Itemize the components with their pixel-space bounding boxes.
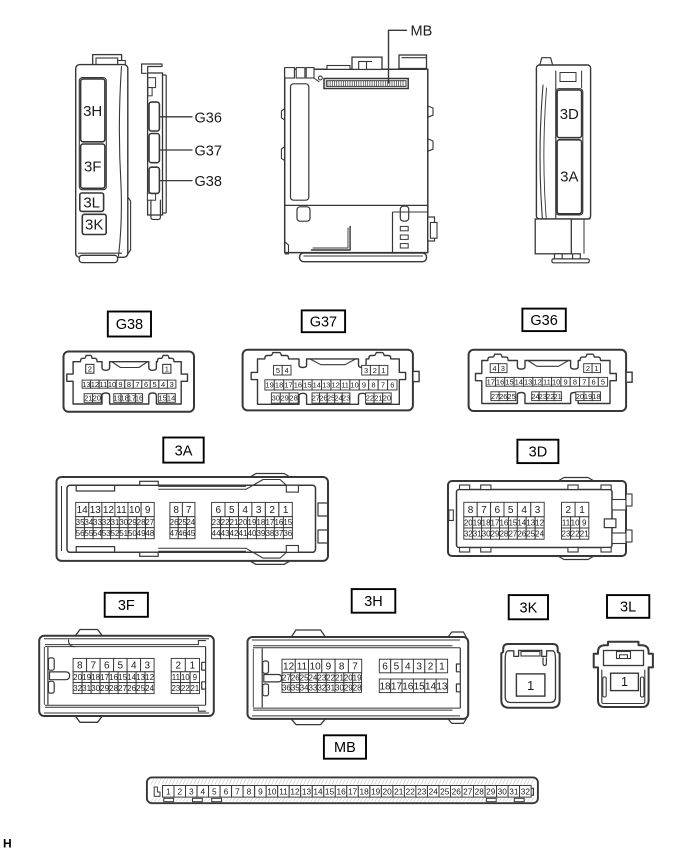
svg-text:6: 6 <box>382 662 388 673</box>
svg-text:13: 13 <box>82 380 90 389</box>
svg-text:9: 9 <box>582 518 587 527</box>
svg-text:G38: G38 <box>195 174 222 190</box>
svg-text:14: 14 <box>313 381 321 390</box>
svg-text:13: 13 <box>436 681 448 692</box>
svg-text:3: 3 <box>535 505 541 516</box>
svg-text:19: 19 <box>353 674 362 683</box>
svg-text:1: 1 <box>190 661 196 672</box>
svg-text:15: 15 <box>158 394 166 403</box>
svg-text:17: 17 <box>284 381 292 390</box>
svg-text:17: 17 <box>391 681 403 692</box>
svg-text:8: 8 <box>173 505 179 516</box>
svg-text:12: 12 <box>533 378 541 387</box>
svg-text:12: 12 <box>332 381 340 390</box>
svg-text:23: 23 <box>417 786 427 796</box>
svg-text:8: 8 <box>468 505 474 516</box>
svg-text:13: 13 <box>90 505 102 516</box>
svg-text:G38: G38 <box>116 317 143 333</box>
svg-text:3D: 3D <box>560 106 579 123</box>
svg-text:15: 15 <box>505 378 513 387</box>
svg-text:3: 3 <box>501 364 505 373</box>
svg-text:21: 21 <box>580 530 589 539</box>
svg-text:10: 10 <box>310 662 322 673</box>
svg-text:9: 9 <box>258 786 263 796</box>
svg-text:29: 29 <box>281 394 289 403</box>
svg-text:4: 4 <box>200 786 205 796</box>
svg-text:26: 26 <box>452 786 462 796</box>
svg-text:2: 2 <box>373 366 377 375</box>
svg-text:10: 10 <box>571 518 580 527</box>
svg-text:1: 1 <box>621 674 628 689</box>
svg-text:3A: 3A <box>175 443 193 459</box>
svg-text:4: 4 <box>285 366 289 375</box>
svg-text:24: 24 <box>535 530 544 539</box>
svg-text:17: 17 <box>348 786 358 796</box>
svg-text:14: 14 <box>77 505 89 516</box>
svg-text:3A: 3A <box>560 169 578 186</box>
svg-text:H: H <box>3 837 12 851</box>
svg-text:16: 16 <box>402 681 414 692</box>
svg-text:7: 7 <box>91 661 97 672</box>
svg-text:48: 48 <box>145 529 154 538</box>
svg-text:30: 30 <box>498 786 508 796</box>
svg-text:15: 15 <box>414 681 426 692</box>
svg-text:3K: 3K <box>520 600 538 616</box>
svg-text:24: 24 <box>145 684 154 693</box>
svg-text:2: 2 <box>586 364 590 373</box>
svg-text:8: 8 <box>339 662 345 673</box>
svg-text:5: 5 <box>601 378 605 387</box>
svg-text:6: 6 <box>216 505 222 516</box>
svg-text:3: 3 <box>256 505 262 516</box>
svg-text:18: 18 <box>379 681 391 692</box>
svg-text:4: 4 <box>161 380 165 389</box>
svg-text:9: 9 <box>362 381 366 390</box>
svg-text:32: 32 <box>521 786 531 796</box>
svg-text:20: 20 <box>576 392 584 401</box>
svg-text:18: 18 <box>359 786 369 796</box>
svg-text:22: 22 <box>571 530 580 539</box>
svg-text:8: 8 <box>127 380 131 389</box>
svg-text:9: 9 <box>145 505 151 516</box>
svg-text:10: 10 <box>108 380 116 389</box>
svg-text:2: 2 <box>177 786 182 796</box>
svg-text:13: 13 <box>322 381 330 390</box>
svg-text:4: 4 <box>492 364 496 373</box>
svg-text:11: 11 <box>562 518 571 527</box>
svg-text:19: 19 <box>371 786 381 796</box>
svg-text:5: 5 <box>118 661 124 672</box>
svg-text:18: 18 <box>275 381 283 390</box>
svg-text:5: 5 <box>229 505 235 516</box>
svg-text:3: 3 <box>145 661 151 672</box>
svg-text:7: 7 <box>582 378 586 387</box>
svg-text:8: 8 <box>247 786 252 796</box>
svg-text:11: 11 <box>279 786 288 796</box>
svg-text:3F: 3F <box>84 158 102 175</box>
svg-text:11: 11 <box>116 505 127 516</box>
svg-text:5: 5 <box>394 662 400 673</box>
svg-text:27: 27 <box>463 786 473 796</box>
svg-text:15: 15 <box>325 786 335 796</box>
svg-text:27: 27 <box>145 518 154 527</box>
svg-text:24: 24 <box>429 786 439 796</box>
svg-text:12: 12 <box>145 673 154 682</box>
svg-text:12: 12 <box>290 786 300 796</box>
svg-text:14: 14 <box>167 394 175 403</box>
svg-text:21: 21 <box>374 394 382 403</box>
svg-text:G37: G37 <box>310 315 337 331</box>
svg-text:7: 7 <box>481 505 487 516</box>
svg-text:31: 31 <box>509 786 519 796</box>
svg-text:7: 7 <box>186 505 192 516</box>
svg-text:19: 19 <box>265 381 273 390</box>
svg-text:7: 7 <box>135 380 139 389</box>
svg-text:7: 7 <box>352 662 358 673</box>
svg-text:7: 7 <box>381 381 385 390</box>
svg-text:25: 25 <box>440 786 450 796</box>
svg-text:25: 25 <box>507 392 515 401</box>
svg-text:1: 1 <box>165 365 169 374</box>
svg-text:1: 1 <box>579 505 585 516</box>
svg-text:11: 11 <box>172 673 181 682</box>
svg-text:28: 28 <box>289 394 297 403</box>
svg-text:20: 20 <box>93 394 101 403</box>
svg-text:3: 3 <box>364 366 368 375</box>
svg-text:13: 13 <box>524 378 532 387</box>
svg-text:30: 30 <box>272 394 280 403</box>
svg-text:1: 1 <box>283 505 289 516</box>
svg-text:10: 10 <box>181 673 190 682</box>
svg-text:5: 5 <box>276 366 280 375</box>
svg-text:8: 8 <box>371 381 375 390</box>
svg-text:3D: 3D <box>529 445 548 461</box>
svg-text:11: 11 <box>341 381 349 390</box>
svg-text:6: 6 <box>390 381 394 390</box>
svg-text:16: 16 <box>294 381 302 390</box>
svg-text:6: 6 <box>592 378 596 387</box>
svg-text:20: 20 <box>382 786 392 796</box>
svg-text:2: 2 <box>566 505 572 516</box>
svg-text:3L: 3L <box>83 195 100 212</box>
svg-text:23: 23 <box>342 394 350 403</box>
svg-text:3H: 3H <box>364 594 383 610</box>
svg-text:4: 4 <box>131 661 137 672</box>
svg-text:6: 6 <box>104 661 110 672</box>
svg-text:21: 21 <box>84 394 92 403</box>
svg-text:5: 5 <box>153 380 157 389</box>
svg-text:17: 17 <box>487 378 495 387</box>
svg-text:28: 28 <box>475 786 485 796</box>
svg-text:18: 18 <box>592 392 600 401</box>
svg-text:9: 9 <box>193 673 198 682</box>
svg-text:1: 1 <box>381 366 385 375</box>
svg-text:4: 4 <box>242 505 248 516</box>
svg-text:10: 10 <box>350 381 358 390</box>
svg-text:1: 1 <box>527 678 534 693</box>
svg-text:14: 14 <box>425 681 437 692</box>
svg-text:1: 1 <box>166 786 171 796</box>
svg-text:45: 45 <box>186 529 195 538</box>
svg-text:11: 11 <box>100 380 108 389</box>
svg-text:3: 3 <box>170 380 174 389</box>
svg-text:8: 8 <box>77 661 83 672</box>
svg-text:12: 12 <box>535 518 544 527</box>
svg-text:G36: G36 <box>195 110 222 126</box>
svg-text:15: 15 <box>283 518 292 527</box>
svg-text:9: 9 <box>564 378 568 387</box>
svg-text:6: 6 <box>495 505 501 516</box>
svg-text:1: 1 <box>594 364 598 373</box>
svg-text:2: 2 <box>176 661 182 672</box>
svg-text:G37: G37 <box>195 144 222 160</box>
svg-text:28: 28 <box>353 683 362 692</box>
svg-text:7: 7 <box>235 786 240 796</box>
svg-text:13: 13 <box>302 786 312 796</box>
svg-text:5: 5 <box>212 786 217 796</box>
svg-text:16: 16 <box>336 786 346 796</box>
svg-text:26: 26 <box>499 392 507 401</box>
svg-text:2: 2 <box>88 365 92 374</box>
svg-text:22: 22 <box>406 786 416 796</box>
svg-text:15: 15 <box>303 381 311 390</box>
svg-text:9: 9 <box>326 662 332 673</box>
svg-text:3F: 3F <box>118 598 135 614</box>
svg-text:9: 9 <box>118 380 122 389</box>
svg-text:24: 24 <box>186 518 195 527</box>
svg-text:3: 3 <box>189 786 194 796</box>
svg-text:36: 36 <box>283 529 292 538</box>
svg-text:3H: 3H <box>83 103 102 120</box>
svg-text:4: 4 <box>521 505 527 516</box>
svg-text:12: 12 <box>91 380 99 389</box>
svg-text:22: 22 <box>366 394 374 403</box>
svg-text:21: 21 <box>554 392 562 401</box>
svg-text:8: 8 <box>573 378 577 387</box>
svg-text:2: 2 <box>428 662 434 673</box>
svg-text:16: 16 <box>496 378 504 387</box>
svg-text:21: 21 <box>190 684 199 693</box>
svg-text:10: 10 <box>129 505 141 516</box>
svg-text:11: 11 <box>297 662 308 673</box>
svg-text:5: 5 <box>508 505 514 516</box>
svg-text:6: 6 <box>144 380 148 389</box>
svg-text:2: 2 <box>269 505 275 516</box>
svg-text:3L: 3L <box>620 600 636 616</box>
svg-text:11: 11 <box>543 378 551 387</box>
svg-text:23: 23 <box>562 530 571 539</box>
svg-text:12: 12 <box>283 662 295 673</box>
svg-text:3: 3 <box>416 662 422 673</box>
svg-text:22: 22 <box>181 684 190 693</box>
svg-text:10: 10 <box>552 378 560 387</box>
svg-text:4: 4 <box>405 662 411 673</box>
svg-text:19: 19 <box>584 392 592 401</box>
svg-text:23: 23 <box>171 684 180 693</box>
svg-text:MB: MB <box>411 23 433 39</box>
svg-text:1: 1 <box>439 662 445 673</box>
svg-text:21: 21 <box>394 786 404 796</box>
svg-text:3K: 3K <box>85 217 103 234</box>
svg-text:12: 12 <box>103 505 115 516</box>
svg-text:29: 29 <box>486 786 496 796</box>
svg-text:14: 14 <box>313 786 323 796</box>
svg-text:16: 16 <box>135 394 143 403</box>
svg-text:27: 27 <box>491 392 499 401</box>
svg-text:14: 14 <box>515 378 523 387</box>
svg-text:20: 20 <box>383 394 391 403</box>
svg-text:G36: G36 <box>530 313 557 329</box>
svg-text:10: 10 <box>267 786 277 796</box>
svg-text:6: 6 <box>224 786 229 796</box>
svg-text:MB: MB <box>334 740 356 756</box>
